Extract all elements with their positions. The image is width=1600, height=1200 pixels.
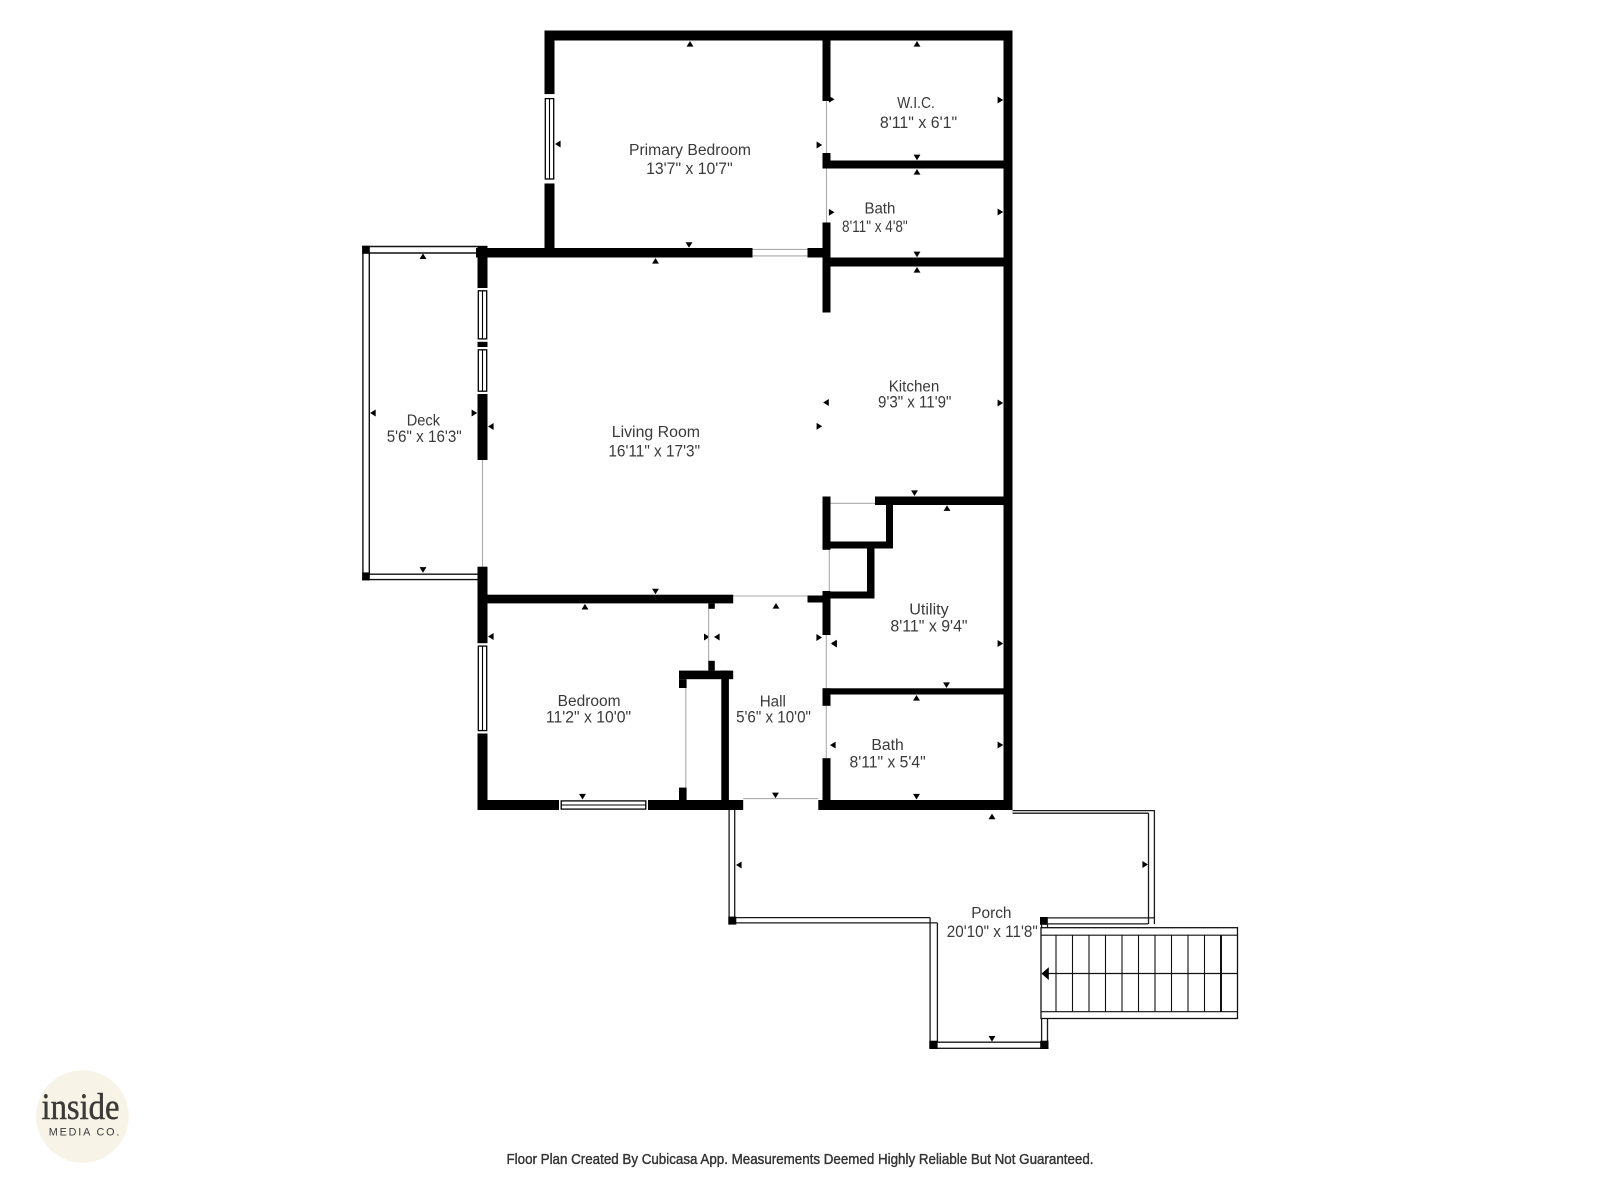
- svg-text:Bath: Bath: [871, 737, 903, 754]
- svg-text:13'7" x 10'7": 13'7" x 10'7": [646, 159, 733, 178]
- svg-text:8'11" x 9'4": 8'11" x 9'4": [890, 617, 967, 636]
- svg-text:Primary Bedroom: Primary Bedroom: [629, 142, 751, 159]
- svg-text:8'11" x 6'1": 8'11" x 6'1": [880, 113, 957, 132]
- svg-text:5'6" x 16'3": 5'6" x 16'3": [387, 427, 462, 446]
- svg-text:11'2" x 10'0": 11'2" x 10'0": [546, 708, 631, 727]
- svg-text:8'11" x 5'4": 8'11" x 5'4": [850, 753, 926, 772]
- svg-text:8'11" x 4'8": 8'11" x 4'8": [842, 217, 908, 236]
- svg-text:20'10" x 11'8": 20'10" x 11'8": [947, 922, 1038, 941]
- svg-text:Living Room: Living Room: [612, 424, 700, 441]
- svg-text:9'3" x 11'9": 9'3" x 11'9": [878, 393, 951, 412]
- svg-text:5'6" x 10'0": 5'6" x 10'0": [736, 708, 811, 727]
- svg-text:MEDIA CO.: MEDIA CO.: [49, 1127, 121, 1139]
- svg-text:Floor Plan Created By Cubicasa: Floor Plan Created By Cubicasa App. Meas…: [507, 1151, 1094, 1168]
- svg-text:16'11" x 17'3": 16'11" x 17'3": [608, 442, 700, 461]
- svg-text:Porch: Porch: [971, 905, 1011, 922]
- svg-text:W.I.C.: W.I.C.: [897, 95, 935, 112]
- svg-text:Bath: Bath: [864, 201, 895, 218]
- svg-text:inside: inside: [42, 1087, 120, 1128]
